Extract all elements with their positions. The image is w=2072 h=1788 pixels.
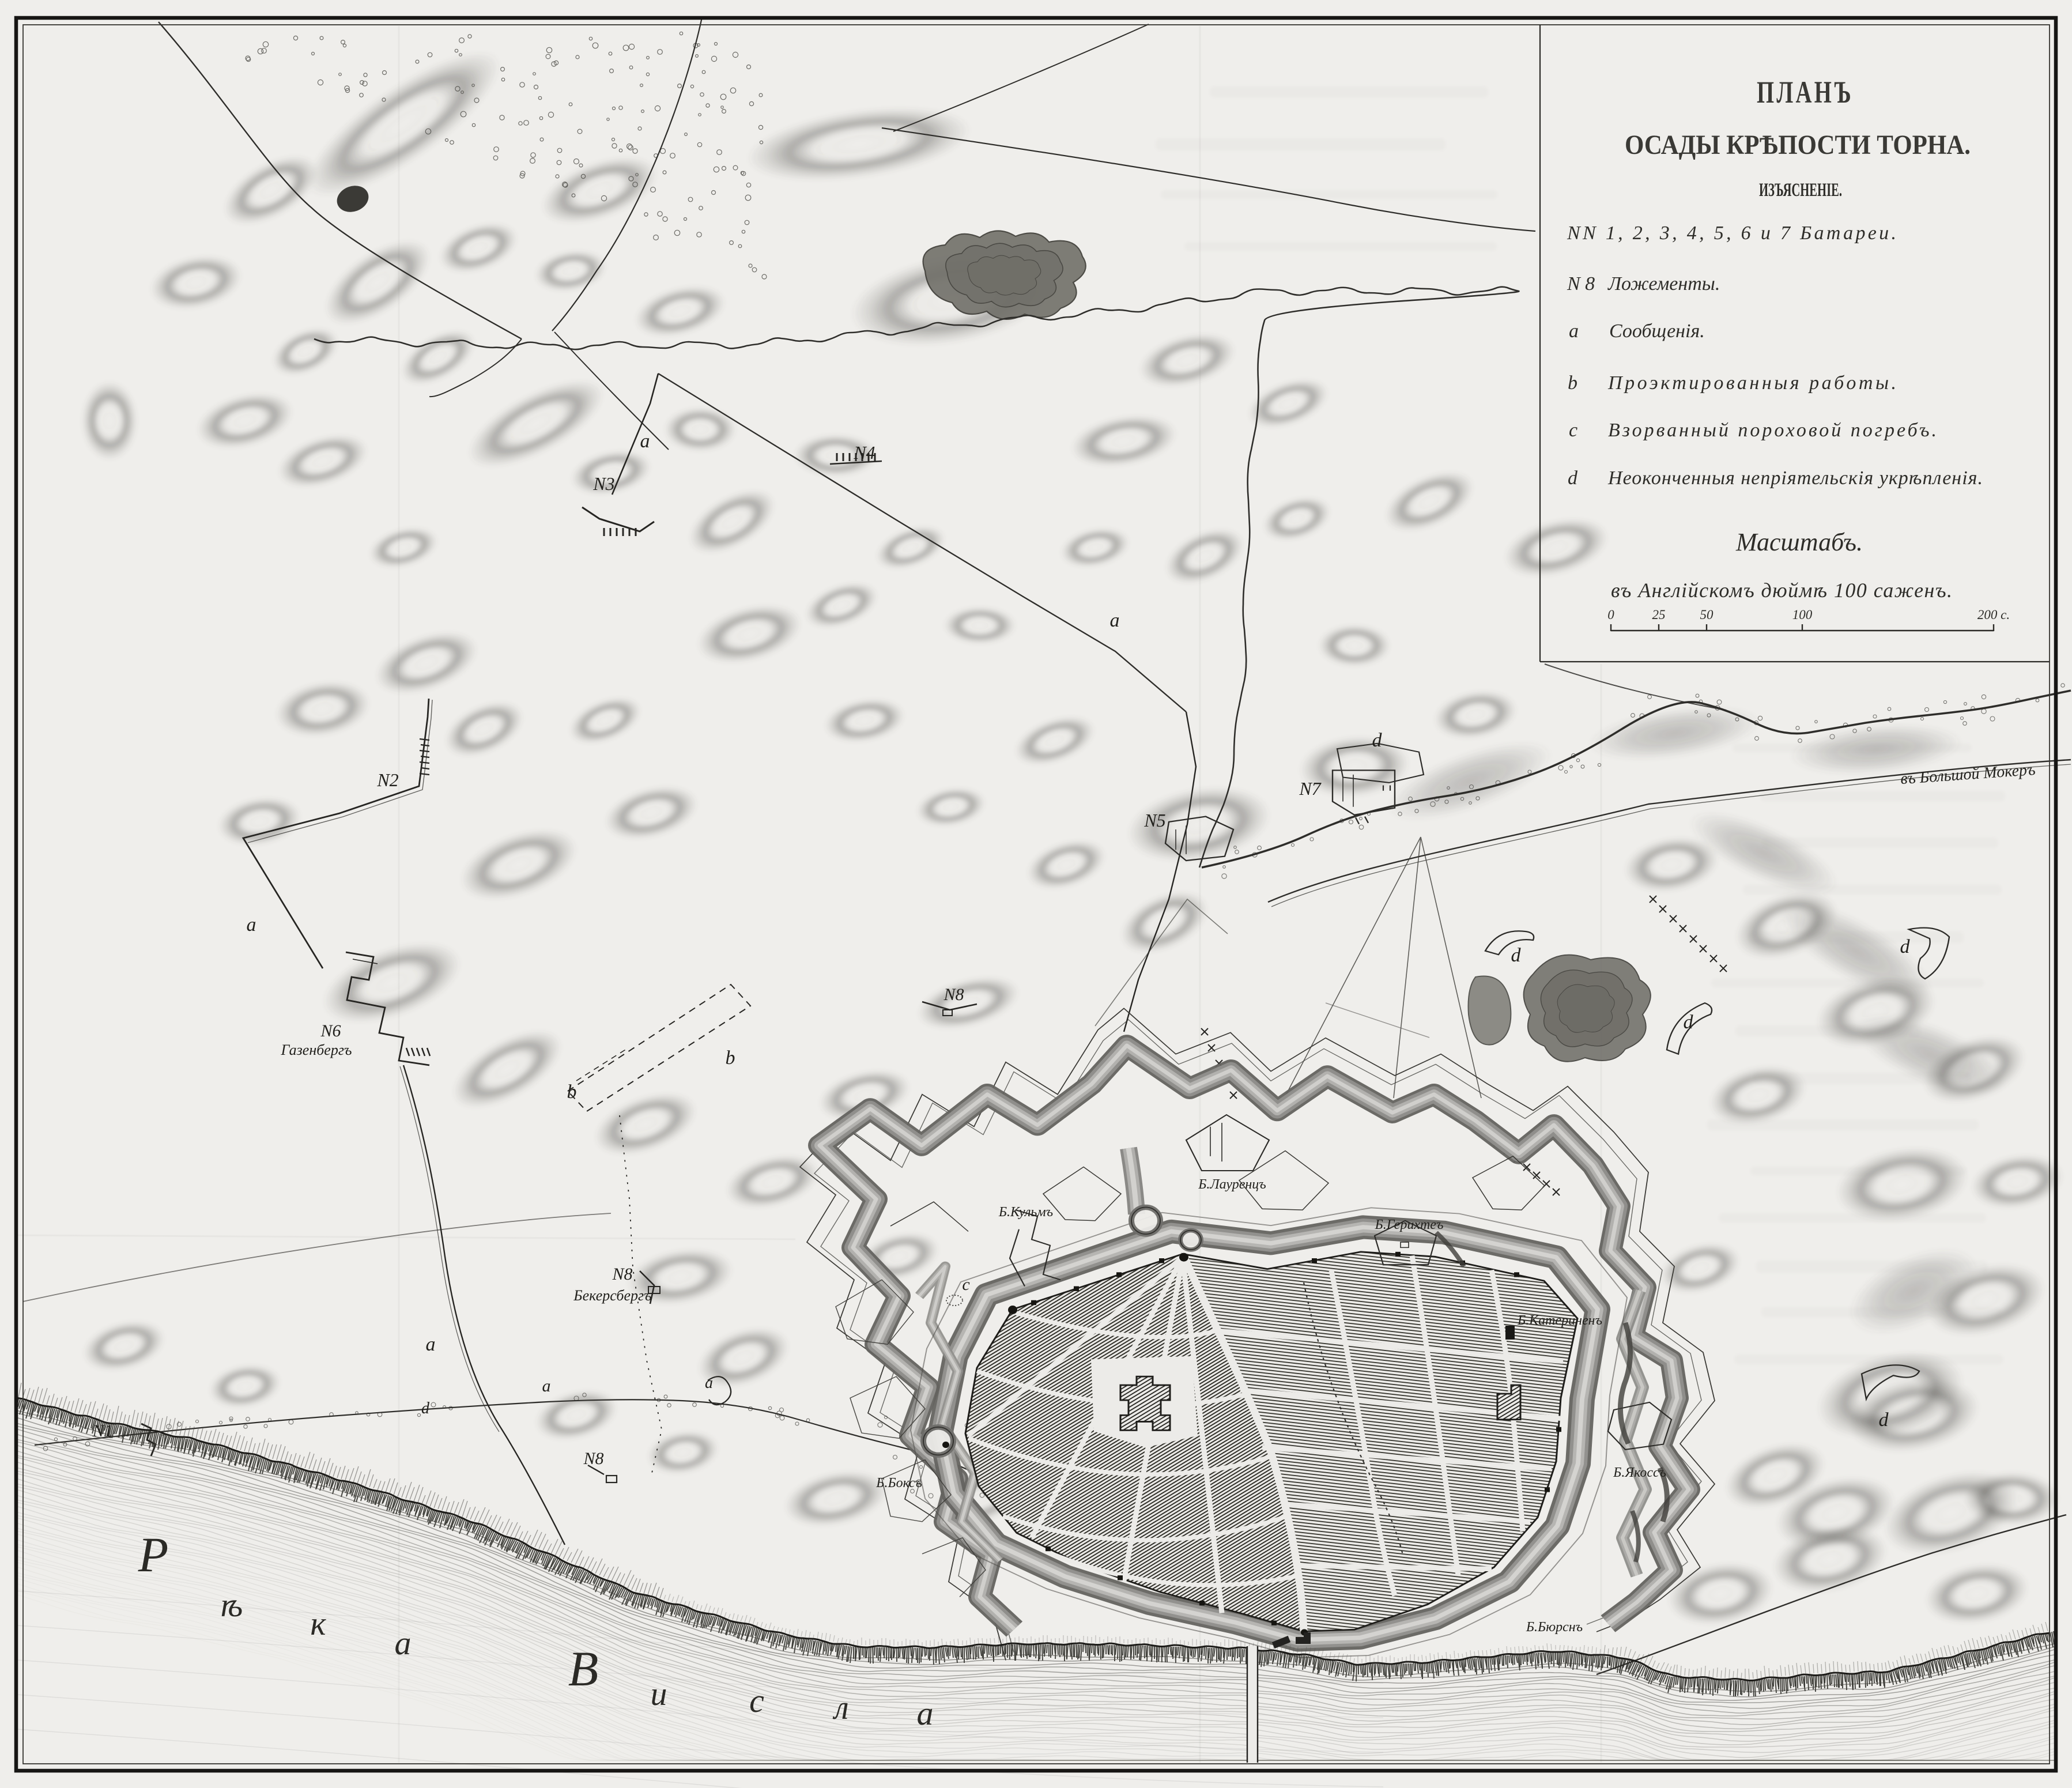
svg-text:ОСАДЫ КРѢПОСТИ ТОРНА.: ОСАДЫ КРѢПОСТИ ТОРНА. (1625, 130, 1971, 160)
svg-text:b: b (567, 1081, 577, 1103)
svg-text:с: с (749, 1682, 764, 1719)
svg-text:Б.Боксъ: Б.Боксъ (875, 1476, 922, 1491)
svg-text:к: к (310, 1605, 326, 1642)
svg-text:b: b (1568, 372, 1577, 394)
svg-text:N8: N8 (612, 1265, 632, 1284)
svg-text:N2: N2 (376, 769, 398, 790)
svg-text:Б.Якоссъ: Б.Якоссъ (1613, 1465, 1666, 1480)
svg-text:0: 0 (1607, 608, 1614, 622)
svg-text:л: л (832, 1689, 848, 1726)
svg-text:Газенбергъ: Газенбергъ (281, 1042, 352, 1058)
svg-text:c: c (962, 1275, 969, 1294)
svg-text:b: b (726, 1047, 735, 1069)
svg-text:ПЛАНЪ: ПЛАНЪ (1757, 75, 1854, 110)
svg-text:a: a (640, 431, 650, 452)
svg-text:a: a (1569, 320, 1579, 342)
svg-text:d: d (1568, 467, 1578, 489)
svg-text:a: a (247, 914, 256, 936)
svg-text:N5: N5 (1143, 810, 1165, 831)
svg-text:N3: N3 (592, 473, 614, 494)
svg-text:100: 100 (1792, 608, 1813, 622)
svg-text:Ложементы.: Ложементы. (1607, 273, 1720, 295)
svg-text:d: d (1684, 1012, 1694, 1033)
svg-text:a: a (542, 1376, 551, 1395)
svg-text:N8: N8 (583, 1449, 603, 1468)
svg-text:d: d (1372, 730, 1383, 751)
svg-text:a: a (705, 1374, 713, 1392)
svg-text:Б.Кульмъ: Б.Кульмъ (998, 1205, 1053, 1220)
svg-text:N7: N7 (1299, 778, 1322, 799)
svg-text:d: d (1879, 1409, 1889, 1431)
svg-text:d: d (421, 1400, 430, 1417)
svg-text:Проэктированныя работы.: Проэктированныя работы. (1607, 372, 1896, 394)
svg-text:c: c (1569, 420, 1577, 441)
svg-text:Б.Катериненъ: Б.Катериненъ (1517, 1313, 1602, 1328)
svg-text:d: d (1511, 945, 1522, 966)
svg-text:и: и (651, 1675, 667, 1712)
svg-text:N 8: N 8 (1567, 273, 1595, 295)
svg-text:25: 25 (1652, 608, 1666, 622)
svg-text:a: a (1110, 610, 1120, 631)
svg-text:Б.Бюрснъ: Б.Бюрснъ (1526, 1620, 1583, 1635)
svg-text:а: а (917, 1695, 934, 1732)
svg-text:Б.Лауренцъ: Б.Лауренцъ (1198, 1177, 1266, 1192)
svg-text:N8: N8 (943, 985, 964, 1004)
svg-text:Бекерсбергъ: Бекерсбергъ (573, 1287, 651, 1304)
svg-text:200 c.: 200 c. (1977, 608, 2010, 622)
svg-text:Масштабъ.: Масштабъ. (1735, 528, 1863, 556)
svg-text:N1: N1 (92, 1421, 112, 1440)
svg-text:50: 50 (1700, 608, 1714, 622)
svg-text:ИЗЪЯСНЕНІЕ.: ИЗЪЯСНЕНІЕ. (1759, 180, 1842, 201)
svg-text:a: a (426, 1334, 436, 1355)
svg-text:ѣ: ѣ (221, 1586, 243, 1624)
svg-text:а: а (395, 1624, 412, 1662)
svg-text:N4: N4 (853, 442, 875, 463)
svg-text:Сообщенія.: Сообщенія. (1609, 320, 1705, 342)
svg-text:Неоконченныя непріятельскія: Неоконченныя непріятельскія укрѣпленія. (1607, 467, 1983, 489)
svg-text:В: В (568, 1641, 599, 1696)
svg-text:N6: N6 (320, 1021, 341, 1040)
svg-text:Б.Герихтеъ: Б.Герихтеъ (1375, 1217, 1444, 1232)
svg-text:Р: Р (138, 1527, 169, 1582)
